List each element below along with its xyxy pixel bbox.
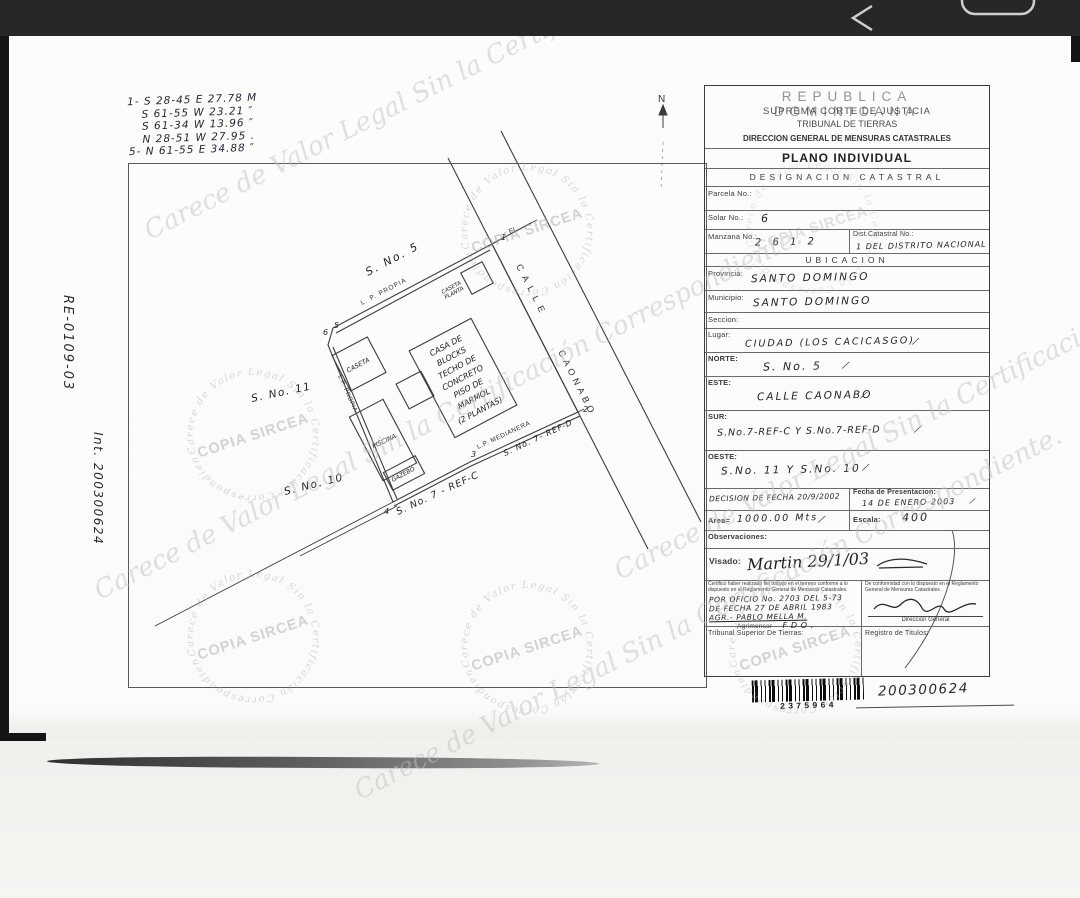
scan-shadow-streak [47, 756, 599, 769]
row-solar: Solar No.: 6 [705, 210, 989, 230]
visado-label: Visado: [709, 556, 741, 566]
sur-value: S.No.7-REF-C Y S.No.7-REF-D [717, 424, 881, 438]
row-manzana: Manzana No.: 2 6 1 2 Dist.Catastral No.:… [705, 229, 989, 254]
provincia-label: Provincia: [708, 269, 743, 278]
manzana-value: 2 6 1 2 [755, 236, 818, 248]
barcode-bars [752, 678, 865, 703]
check-tick: ∕ [864, 462, 867, 474]
fecha-label: Fecha de Presentacion: [853, 489, 936, 496]
fecha-value: 14 DE ENERO 2003 [862, 497, 956, 508]
row-observaciones: Observaciones: [705, 530, 989, 549]
sur-label: SUR: [708, 412, 727, 421]
cert-right-cell: De conformidad con lo dispuesto en el Re… [861, 580, 989, 626]
manzana-label: Manzana No.: [708, 232, 757, 241]
parcela-label: Parcela No.: [708, 189, 752, 198]
visado-flourish [873, 554, 933, 574]
cert-left-cell: Certifico haber realizado fiel trabajo e… [705, 580, 861, 630]
lugar-label: Lugar: [708, 330, 730, 339]
cert-left-text: Certifico haber realizado fiel trabajo e… [705, 580, 861, 593]
form-subtitle-row: DESIGNACION CATASTRAL [705, 168, 989, 187]
pill-button[interactable] [962, 0, 1034, 14]
topbar-icons [0, 0, 1080, 36]
este-label: ESTE: [708, 378, 731, 387]
oficio-line: AGR.- PABLO MELLA M. [709, 611, 861, 623]
margin-note-expediente: RE-0109-03 [60, 295, 75, 391]
viewer-topbar [0, 0, 1080, 36]
observaciones-label: Observaciones: [708, 532, 767, 541]
row-sur: SUR: S.No.7-REF-C Y S.No.7-REF-D ∕ [705, 410, 989, 451]
registro-titulos-label: Registro de Titulos: [865, 630, 929, 637]
solar-value: 6 [761, 212, 770, 225]
cell-fecha-presentacion: Fecha de Presentacion: 14 DE ENERO 2003 … [849, 488, 989, 510]
row-provincia: Provincia: SANTO DOMINGO [705, 266, 989, 291]
underline-mark [856, 705, 1014, 709]
escala-value: 400 [902, 511, 929, 525]
dist-label: Dist.Catastral No.: [853, 231, 914, 238]
form-subtitle: DESIGNACION CATASTRAL [705, 172, 989, 182]
catastral-form: REPUBLICA DOMINICANA SUPREMA CORTE DE JU… [704, 85, 990, 677]
este-value: CALLE CAONABO [757, 389, 873, 403]
row-parcela: Parcela No.: [705, 186, 989, 211]
header-direccion: DIRECCION GENERAL DE MENSURAS CATASTRALE… [705, 134, 989, 143]
plan-frame [128, 163, 707, 688]
cell-escala: Escala: 400 [849, 510, 989, 530]
area-value: 1000.00 Mts [737, 512, 818, 525]
oeste-value: S.No. 11 Y S.No. 10 [721, 463, 861, 478]
row-bottom: Tribunal Superior De Tierras: Registro d… [705, 626, 989, 676]
survey-bearings: 1- S 28-45 E 27.78 M S 61-55 W 23.21 ″ S… [127, 88, 369, 159]
row-seccion: Seccion: [705, 312, 989, 329]
director-signature [868, 593, 984, 615]
norte-value: S. No. 5 [763, 359, 822, 373]
solar-label: Solar No.: [708, 213, 743, 222]
decision-value: DECISION DE FECHA 20/9/2002 [709, 492, 840, 504]
ubicacion-title: UBICACION [705, 255, 989, 265]
header-court: SUPREMA CORTE DE JUSTICIA [705, 106, 989, 117]
form-title-row: PLANO INDIVIDUAL [705, 148, 989, 169]
row-visado: Visado: Martin 29/1/03 [705, 548, 989, 581]
row-norte: NORTE: S. No. 5 ∕ [705, 352, 989, 377]
provincia-value: SANTO DOMINGO [751, 271, 870, 285]
municipio-label: Municipio: [708, 293, 744, 302]
back-chevron-icon[interactable] [853, 6, 872, 30]
oeste-label: OESTE: [708, 452, 737, 461]
header-tribunal: TRIBUNAL DE TIERRAS [705, 119, 989, 129]
row-ubicacion-title: UBICACION [705, 253, 989, 267]
cert-right-text: De conformidad con lo dispuesto en el Re… [862, 580, 989, 593]
row-oeste: OESTE: S.No. 11 Y S.No. 10 ∕ [705, 450, 989, 489]
photo-edge-left [0, 36, 9, 736]
registro-cell: Registro de Titulos: [861, 626, 989, 676]
tribunal-superior-label: Tribunal Superior De Tierras: [708, 630, 803, 637]
margin-note-interno: Int. 200300624 [91, 432, 105, 545]
row-este: ESTE: CALLE CAONABO ∕ [705, 376, 989, 411]
row-area-escala: Area= 1000.00 Mts ∕ Escala: 400 [705, 510, 989, 531]
barcode-number: 2375964 [752, 700, 864, 713]
dist-value: 1 DEL DISTRITO NACIONAL [856, 240, 987, 252]
photo-edge-bottom-left [0, 733, 46, 741]
north-label: N [658, 94, 665, 105]
form-title: PLANO INDIVIDUAL [705, 151, 989, 165]
check-tick: ∕ [914, 336, 917, 348]
seccion-label: Seccion: [708, 315, 738, 324]
scanned-plan-photo: N CASA DE BLOCKS TECHO DE CONCRETO PISO … [0, 0, 1080, 898]
row-municipio: Municipio: SANTO DOMINGO [705, 290, 989, 313]
form-header: REPUBLICA DOMINICANA SUPREMA CORTE DE JU… [705, 86, 989, 149]
check-tick: ∕ [844, 360, 847, 372]
row-decision-fecha: DECISION DE FECHA 20/9/2002 Fecha de Pre… [705, 488, 989, 511]
norte-label: NORTE: [708, 354, 738, 363]
row-lugar: Lugar: CIUDAD (LOS CACICASGO) ∕ [705, 328, 989, 353]
check-tick: ∕ [916, 424, 919, 436]
check-tick: ∕ [971, 496, 974, 506]
lugar-value: CIUDAD (LOS CACICASGO) [745, 335, 915, 350]
cell-dist-catastral: Dist.Catastral No.: 1 DEL DISTRITO NACIO… [849, 229, 989, 253]
photo-edge-right [1071, 36, 1080, 62]
area-label: Area= [708, 516, 730, 525]
direccion-general-label: Direccion General [862, 617, 989, 623]
escala-label: Escala: [853, 515, 881, 524]
barcode: 2375964 [752, 678, 865, 713]
written-claim-number: 200300624 [878, 680, 969, 699]
check-tick: ∕ [820, 514, 823, 526]
row-certifications: Certifico haber realizado fiel trabajo e… [705, 580, 989, 627]
visado-signature: Martin 29/1/03 [747, 549, 870, 574]
municipio-value: SANTO DOMINGO [753, 295, 872, 309]
